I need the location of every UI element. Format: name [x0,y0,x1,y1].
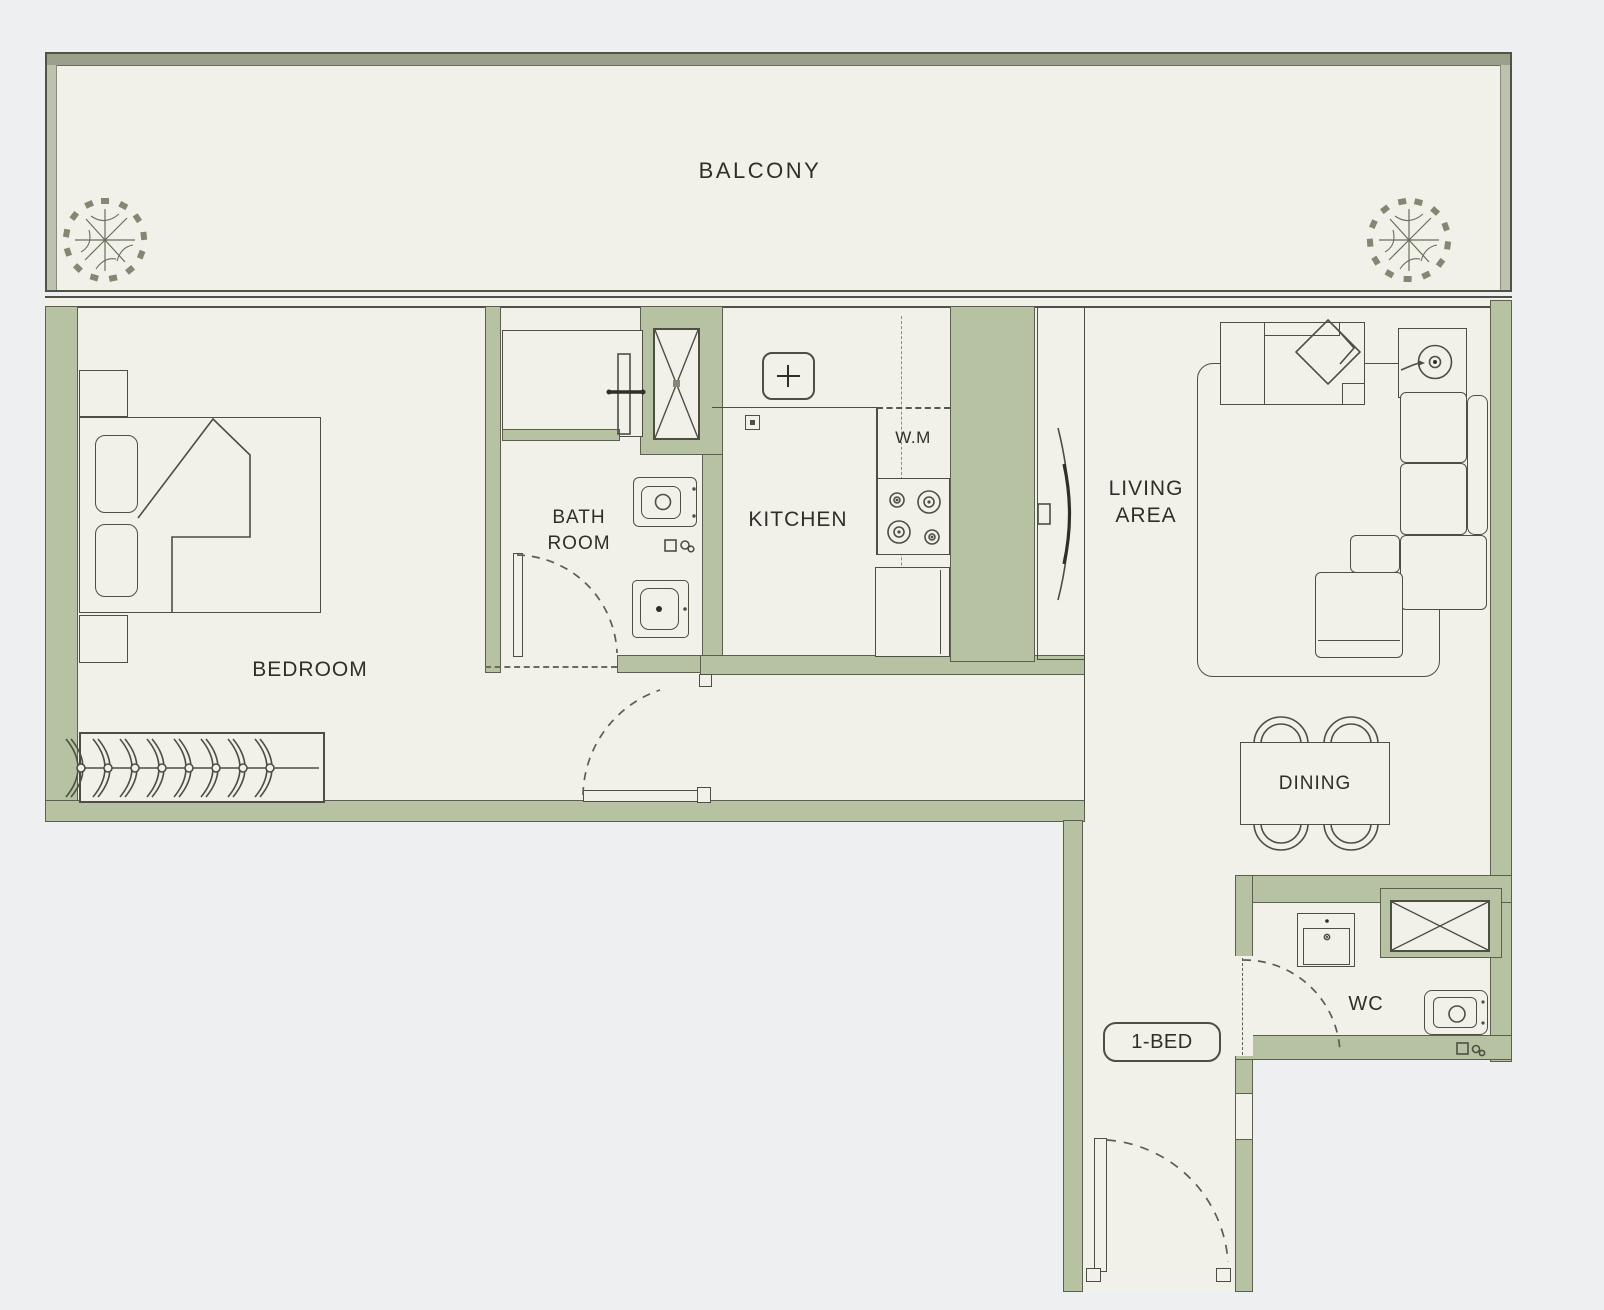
shaft-cross-icon [653,328,700,440]
floor-drain-icon [663,534,697,556]
door-swing-icon [505,545,630,665]
gas-point [745,415,760,430]
kitchen-label: KITCHEN [718,508,878,532]
plant-icon [60,195,150,285]
counter-edge [712,407,878,408]
sofa-corner [1400,535,1487,610]
toilet-detail [1424,990,1494,1040]
living-area-label: LIVINGAREA [1086,475,1206,529]
fridge-icon [875,567,950,657]
balcony-slab-left [47,65,57,290]
sofa-backrest [1350,535,1400,573]
side-table [1398,328,1467,398]
shower-door-handle [605,348,650,440]
wall [45,800,1085,822]
pillow-icon [1294,318,1362,386]
pillow-icon [95,435,138,513]
toilet-detail [632,580,692,640]
kitchen-sink-icon [762,352,815,400]
wall [1063,820,1083,1292]
partition-line [1084,660,1085,805]
balcony-slab-top [47,54,1510,66]
bedroom-opening-dashed [485,666,617,668]
hanger-rail-icon [79,732,325,803]
dining-table-icon: DINING [1240,742,1390,825]
door-frame-block [1216,1268,1231,1282]
balcony-label: BALCONY [600,158,920,184]
washing-machine-label: W.M [875,428,951,448]
floor-plan: BALCONY [0,0,1604,1310]
nightstand [79,370,128,417]
stove-burners-icon [877,478,950,555]
wall [485,306,501,673]
nightstand [79,615,128,663]
bed-blanket-fold [138,413,254,615]
door-frame-block [1086,1268,1101,1282]
shaft-cross-icon [1390,900,1490,952]
door-swing-icon [1098,1130,1238,1278]
unit-type-badge: 1-BED [1103,1022,1221,1062]
dining-label: DINING [1279,773,1352,795]
window-band [45,296,1512,308]
pillow-icon [95,524,138,597]
plant-icon [1364,195,1454,285]
bedroom-label: BEDROOM [220,658,400,682]
sofa-chaise [1315,572,1403,658]
wm-dashed-edge [877,407,950,409]
wc-label: WC [1338,993,1394,1016]
wall [45,306,78,822]
floor-lamp-icon [1399,329,1464,395]
sofa-backrest [1467,395,1488,535]
sofa-icon [1400,392,1467,463]
sofa-icon [1400,463,1467,535]
floor-drain-icon [1454,1040,1488,1060]
shower-sill-wall [502,429,620,441]
balcony-slab-right [1500,65,1510,290]
door-swing-icon [575,678,710,803]
wall [950,306,1035,662]
bathroom-label: BATHROOM [520,505,638,557]
washbasin-detail [630,474,700,530]
